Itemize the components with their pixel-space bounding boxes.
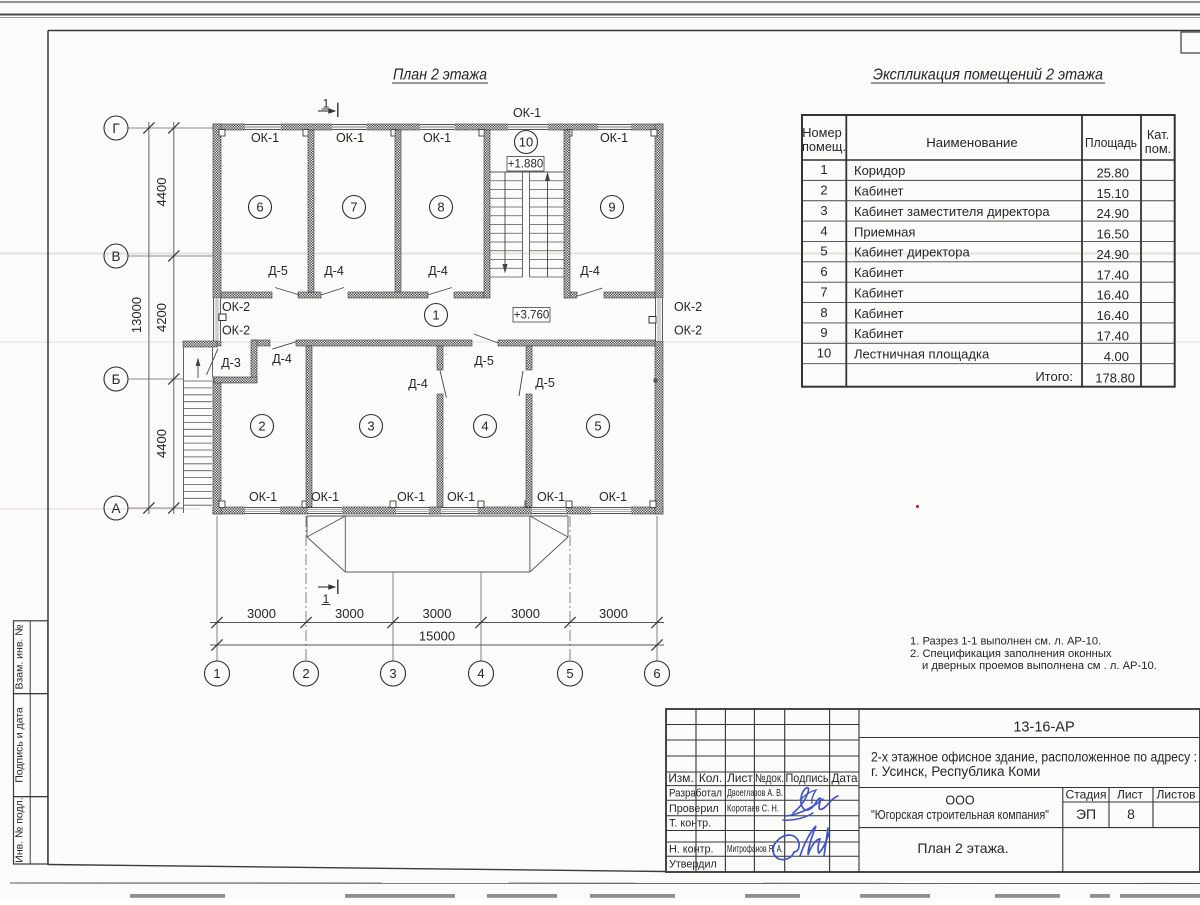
- svg-text:Приемная: Приемная: [854, 224, 915, 239]
- svg-text:Кабинет заместителя директора: Кабинет заместителя директора: [854, 204, 1050, 219]
- svg-text:5: 5: [594, 419, 601, 434]
- svg-text:Г: Г: [112, 121, 120, 136]
- svg-text:Взам. инв. №: Взам. инв. №: [14, 624, 26, 689]
- svg-text:6: 6: [256, 200, 263, 215]
- svg-text:+3.760: +3.760: [514, 310, 550, 322]
- svg-text:9: 9: [608, 200, 615, 215]
- svg-text:2. Спецификация заполнения око: 2. Спецификация заполнения оконных: [910, 648, 1112, 660]
- svg-text:Д-4: Д-4: [408, 377, 428, 391]
- svg-text:15000: 15000: [419, 629, 455, 644]
- svg-text:17.40: 17.40: [1096, 328, 1129, 343]
- svg-text:ОК-1: ОК-1: [397, 490, 425, 504]
- svg-text:3: 3: [367, 419, 374, 434]
- svg-text:8: 8: [820, 305, 827, 320]
- svg-text:ОК-1: ОК-1: [537, 490, 565, 504]
- svg-text:3000: 3000: [247, 606, 276, 621]
- svg-text:Кабинет директора: Кабинет директора: [854, 245, 970, 260]
- svg-text:10: 10: [519, 135, 533, 150]
- svg-text:1: 1: [323, 97, 330, 111]
- svg-text:4200: 4200: [154, 303, 169, 332]
- svg-text:ОК-1: ОК-1: [447, 490, 475, 504]
- svg-text:4400: 4400: [154, 429, 169, 458]
- svg-text:Итого:: Итого:: [1035, 369, 1073, 384]
- svg-text:1. Разрез 1-1 выполнен см. л.: 1. Разрез 1-1 выполнен см. л. АР-10.: [910, 636, 1101, 648]
- svg-text:Проверил: Проверил: [669, 803, 719, 815]
- svg-text:+1.880: +1.880: [508, 159, 544, 171]
- svg-text:А: А: [111, 501, 120, 516]
- svg-text:3: 3: [820, 203, 827, 218]
- svg-text:1: 1: [213, 666, 220, 681]
- svg-text:ОК-1: ОК-1: [599, 490, 627, 504]
- svg-text:3000: 3000: [599, 606, 628, 621]
- svg-text:3: 3: [389, 666, 396, 681]
- svg-text:Листов: Листов: [1157, 788, 1196, 802]
- svg-text:Кабинет: Кабинет: [854, 184, 903, 199]
- svg-text:г. Усинск, Республика Коми: г. Усинск, Республика Коми: [871, 764, 1040, 779]
- svg-text:17.40: 17.40: [1096, 267, 1129, 282]
- svg-text:Лестничная площадка: Лестничная площадка: [854, 347, 990, 362]
- svg-text:Д-5: Д-5: [474, 354, 494, 368]
- svg-text:Коридор: Коридор: [854, 163, 905, 178]
- svg-text:Д-5: Д-5: [268, 264, 288, 278]
- svg-text:16.40: 16.40: [1096, 288, 1129, 303]
- svg-text:2-х этажное офисное здание, ра: 2-х этажное офисное здание, расположенно…: [871, 750, 1197, 765]
- svg-text:пом.: пом.: [1145, 141, 1171, 156]
- svg-text:Инв. № подл.: Инв. № подл.: [14, 797, 26, 862]
- svg-text:Двоеглазов А. В.: Двоеглазов А. В.: [727, 788, 783, 799]
- svg-text:8: 8: [437, 200, 444, 215]
- svg-text:ООО: ООО: [945, 794, 974, 808]
- svg-text:ОК-2: ОК-2: [674, 324, 702, 338]
- svg-text:4: 4: [820, 223, 827, 238]
- svg-text:Подпись: Подпись: [786, 771, 829, 785]
- svg-text:Кабинет: Кабинет: [854, 265, 903, 280]
- svg-text:Разработал: Разработал: [669, 788, 722, 800]
- svg-text:ОК-1: ОК-1: [336, 131, 364, 145]
- svg-text:Д-5: Д-5: [535, 376, 555, 390]
- svg-text:Кабинет: Кабинет: [854, 306, 903, 321]
- svg-text:Д-4: Д-4: [580, 264, 600, 278]
- svg-text:5: 5: [820, 244, 827, 259]
- svg-text:ОК-2: ОК-2: [222, 324, 250, 338]
- svg-text:24.90: 24.90: [1096, 247, 1129, 262]
- svg-text:6: 6: [653, 666, 660, 681]
- svg-text:15.10: 15.10: [1096, 186, 1129, 201]
- svg-text:Т. контр.: Т. контр.: [669, 818, 711, 830]
- svg-text:ОК-1: ОК-1: [513, 106, 541, 120]
- svg-text:Площадь: Площадь: [1085, 135, 1137, 150]
- svg-text:Кат.: Кат.: [1147, 127, 1169, 142]
- svg-text:16.50: 16.50: [1096, 227, 1129, 242]
- svg-text:Б: Б: [112, 372, 121, 387]
- svg-text:План 2 этажа: План 2 этажа: [393, 67, 487, 84]
- svg-text:1: 1: [820, 162, 827, 177]
- svg-text:Стадия: Стадия: [1066, 788, 1107, 802]
- svg-text:и дверных проемов выполнена см: и дверных проемов выполнена см . л. АР-1…: [922, 660, 1157, 672]
- svg-text:ЭП: ЭП: [1076, 806, 1096, 822]
- svg-text:План 2 этажа.: План 2 этажа.: [917, 840, 1008, 856]
- svg-text:4: 4: [481, 419, 488, 434]
- svg-text:8: 8: [1127, 806, 1135, 822]
- svg-text:4400: 4400: [154, 178, 169, 207]
- svg-text:"Югорская строительная компани: "Югорская строительная компания": [871, 808, 1049, 822]
- svg-text:3000: 3000: [335, 606, 364, 621]
- svg-text:25.80: 25.80: [1096, 165, 1129, 180]
- svg-text:ОК-1: ОК-1: [600, 131, 628, 145]
- svg-text:Изм.: Изм.: [668, 771, 693, 785]
- svg-text:Наименование: Наименование: [926, 135, 1017, 150]
- svg-text:4: 4: [477, 666, 484, 681]
- svg-text:1: 1: [323, 592, 330, 606]
- svg-text:ОК-1: ОК-1: [311, 490, 339, 504]
- svg-text:помещ.: помещ.: [802, 139, 846, 154]
- svg-text:9: 9: [820, 325, 827, 340]
- svg-text:ОК-2: ОК-2: [674, 300, 702, 314]
- svg-text:ОК-2: ОК-2: [222, 300, 250, 314]
- svg-text:Д-3: Д-3: [221, 356, 241, 370]
- svg-text:Лист: Лист: [1117, 788, 1144, 802]
- svg-text:Номер: Номер: [802, 125, 841, 140]
- svg-text:13000: 13000: [129, 297, 144, 333]
- svg-text:Д-4: Д-4: [272, 352, 292, 366]
- svg-text:Дата: Дата: [831, 771, 858, 785]
- svg-text:Подпись и дата: Подпись и дата: [14, 707, 26, 783]
- svg-text:13-16-АР: 13-16-АР: [1013, 720, 1074, 736]
- svg-text:1: 1: [432, 308, 439, 323]
- svg-text:2: 2: [820, 183, 827, 198]
- svg-text:24.90: 24.90: [1096, 206, 1129, 221]
- svg-text:16.40: 16.40: [1096, 308, 1129, 323]
- svg-text:Утвердил: Утвердил: [669, 859, 717, 871]
- svg-text:ОК-1: ОК-1: [423, 131, 451, 145]
- svg-text:7: 7: [350, 200, 357, 215]
- svg-text:3000: 3000: [511, 606, 540, 621]
- svg-text:ОК-1: ОК-1: [251, 131, 279, 145]
- svg-text:Коротаев С. Н.: Коротаев С. Н.: [727, 804, 779, 815]
- svg-text:Лист: Лист: [727, 771, 753, 785]
- svg-text:Экспликация помещений 2 этажа: Экспликация помещений 2 этажа: [873, 67, 1103, 84]
- svg-text:Кабинет: Кабинет: [854, 326, 903, 341]
- svg-text:№док.: №док.: [755, 771, 784, 785]
- svg-text:2: 2: [302, 666, 309, 681]
- svg-text:7: 7: [820, 284, 827, 299]
- svg-text:В: В: [111, 249, 120, 264]
- svg-text:Д-4: Д-4: [324, 264, 344, 278]
- svg-text:6: 6: [820, 264, 827, 279]
- svg-text:Д-4: Д-4: [428, 264, 448, 278]
- svg-text:178.80: 178.80: [1095, 371, 1135, 386]
- svg-text:2: 2: [258, 419, 265, 434]
- svg-text:Н. контр.: Н. контр.: [669, 844, 714, 856]
- svg-text:10: 10: [817, 346, 831, 361]
- svg-text:ОК-1: ОК-1: [249, 490, 277, 504]
- svg-text:Кол.: Кол.: [699, 771, 722, 785]
- svg-text:3000: 3000: [423, 606, 452, 621]
- svg-text:Кабинет: Кабинет: [854, 285, 903, 300]
- svg-text:4.00: 4.00: [1104, 349, 1129, 364]
- svg-text:5: 5: [566, 666, 573, 681]
